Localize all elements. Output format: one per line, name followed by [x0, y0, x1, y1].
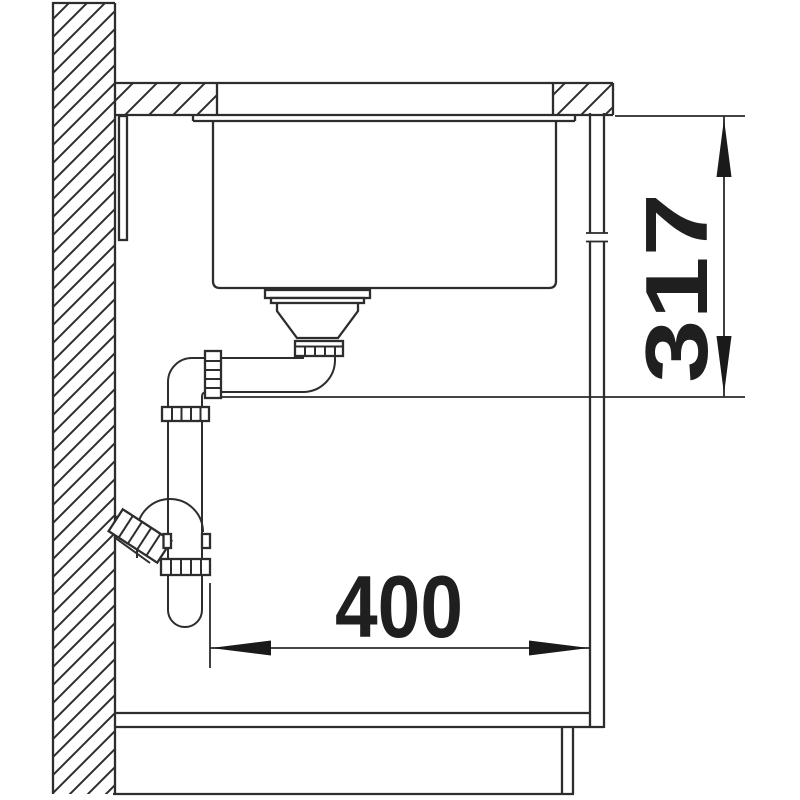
strainer-flange-upper [265, 290, 370, 298]
downpipe-left-line [168, 358, 192, 560]
wall-section [53, 3, 115, 794]
dim-317-arrow-up [717, 119, 732, 177]
cabinet [113, 113, 608, 794]
sink [193, 115, 575, 288]
downpipe-nut [162, 407, 209, 421]
worktop [115, 83, 613, 115]
cabinet-side-panel [590, 113, 604, 728]
wall-rail [119, 116, 127, 240]
trap-union-tab-right [202, 534, 210, 548]
dim-400-arrow-right [529, 641, 589, 656]
trap-u-tube [168, 575, 202, 627]
drain-strainer [265, 290, 370, 338]
strainer-flange-lower [271, 298, 364, 303]
worktop-hatch-left [115, 83, 217, 115]
panel-break-marks [586, 233, 608, 242]
pipe-fittings [109, 341, 343, 575]
dim-317-label: 317 [627, 193, 726, 383]
dim-400-arrow-left [211, 641, 271, 656]
wall-hatch [53, 3, 115, 794]
dim-400-label: 400 [335, 557, 463, 656]
cabinet-bottom-shelf [115, 713, 604, 727]
trap-union-tab-left [164, 534, 172, 548]
plinth-front [562, 727, 573, 794]
strainer-nut [295, 341, 343, 356]
dimension-horizontal-400: 400 [210, 557, 589, 668]
trap-union-nut [161, 559, 210, 575]
sink-bowl [213, 121, 556, 288]
horizontal-pipe-nut [205, 351, 221, 398]
worktop-hatch-right [553, 83, 613, 115]
installation-drawing-canvas: 317 400 [0, 0, 800, 800]
sink-installation-cross-section: 317 400 [0, 0, 800, 800]
strainer-body [277, 303, 358, 338]
